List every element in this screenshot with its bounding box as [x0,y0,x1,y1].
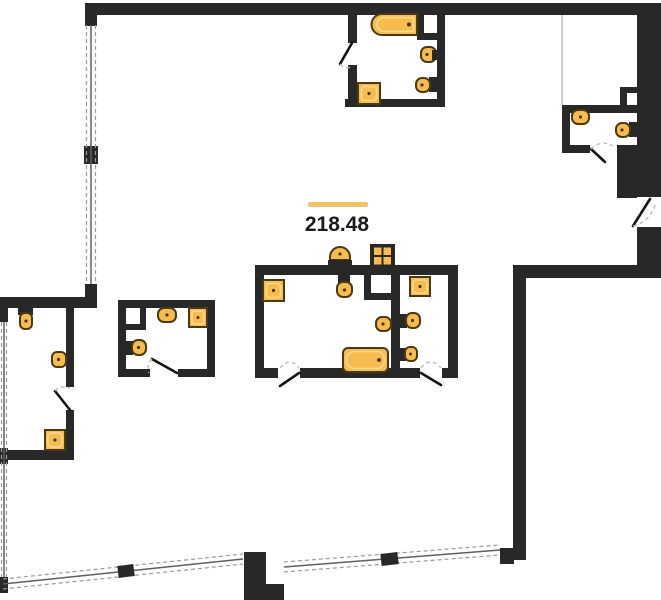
stove-frame [370,244,395,267]
kitchen-sink-icon [328,247,352,266]
area-label: 218.48 [305,213,370,236]
wall-segment [437,15,445,99]
area-underline [308,202,368,207]
shower-tray-icon [410,277,430,296]
drain-dot [272,289,275,292]
floor-plan-drawing: 218.48 [0,0,661,600]
stove-icon [370,244,395,267]
door-swing-arc [280,362,299,368]
door-lower-left-bathroom [55,387,70,410]
door-leaf [421,373,441,385]
door-top-bathroom [340,43,352,68]
wall-segment [562,145,590,153]
wall-segment [0,308,8,322]
toilet-dot [137,346,140,349]
burner [374,257,382,265]
wall-segment [255,265,458,275]
toilet-dot [620,128,623,131]
shaft-wall [620,87,637,93]
sink-base [328,260,352,266]
wall-segment [244,552,266,586]
toilet-icon [400,313,420,328]
wall-segment [513,265,526,560]
door-middle-bathroom [148,359,177,373]
washbasin-icon [376,317,391,331]
washbasin-icon [337,275,352,297]
toilet-icon [18,307,33,329]
wall-segment [66,307,74,387]
wall-segment [118,300,215,308]
shower-tray-icon [263,280,284,301]
washbasin-icon [52,352,66,367]
door-swing-arc [55,387,70,391]
wall-segment [118,369,150,377]
toilet-icon [400,347,417,361]
basin-dot [165,313,168,316]
wall-segment [500,548,514,564]
shower-tray-icon [358,83,380,104]
wall-segment [348,15,357,43]
window-mullion [381,558,398,560]
window-mullion [118,570,134,572]
basin-dot [579,115,582,118]
door-leaf [55,391,70,410]
wall-segment [417,33,445,40]
door-central-right [421,362,441,385]
toilet-dot [409,353,412,356]
shaft-wall [126,324,146,330]
wall-segment [85,284,97,298]
wall-segment [178,369,215,377]
toilet-dot [411,319,414,322]
drain-dot [197,316,200,319]
toilet-dot [24,319,27,322]
wall-segment [617,145,637,198]
drain-dot [407,23,411,27]
wall-segment [391,275,400,368]
burner [374,248,382,256]
wall-segment [85,15,97,26]
washbasin-icon [421,47,437,62]
wall-segment [85,3,661,15]
basin-bracket [432,50,437,60]
drain-dot [377,358,381,362]
wall-segment [637,3,661,198]
wall-segment [244,584,284,600]
floor-plan: 218.48 [0,0,661,600]
wall-segment [255,368,278,378]
wall-segment [118,300,126,377]
shower-tray-icon [189,308,207,327]
door-leaf [152,359,177,373]
toilet-icon [616,122,637,137]
wall-segment [417,15,424,33]
washbasin-icon [572,107,589,124]
basin-dot [343,288,346,291]
wall-segment [6,450,74,460]
area-annotation: 218.48 [305,202,370,236]
sink-dot [338,252,341,255]
bathtub-icon [343,348,388,372]
burner [384,248,392,256]
basin-dot [425,53,428,56]
drain-dot [53,438,56,441]
shaft-wall [364,293,400,300]
toilet-icon [416,77,437,92]
wall-segment [442,368,458,378]
wall-segment [0,297,97,308]
window-band-bottom-left [3,554,243,589]
wall-segment [448,265,458,378]
toilet-dot [420,83,423,86]
wall-segment [513,265,661,278]
door-swing-arc [421,362,441,368]
toilet-icon [126,340,146,355]
door-leaf [280,373,299,386]
door-leaf [340,43,352,64]
basin-dot [57,358,60,361]
door-leaf [591,149,605,162]
burner [384,257,392,265]
window-band-bottom-right [284,545,500,572]
door-swing-arc [591,143,613,149]
door-top-right-bathroom [591,143,613,162]
drain-dot [367,92,370,95]
basin-dot [381,322,384,325]
shower-tray-icon [45,430,65,450]
washbasin-icon [158,308,176,322]
wall-segment [207,300,215,377]
drain-dot [418,285,421,288]
bathtub-icon [372,14,417,35]
door-central-left [280,362,299,386]
